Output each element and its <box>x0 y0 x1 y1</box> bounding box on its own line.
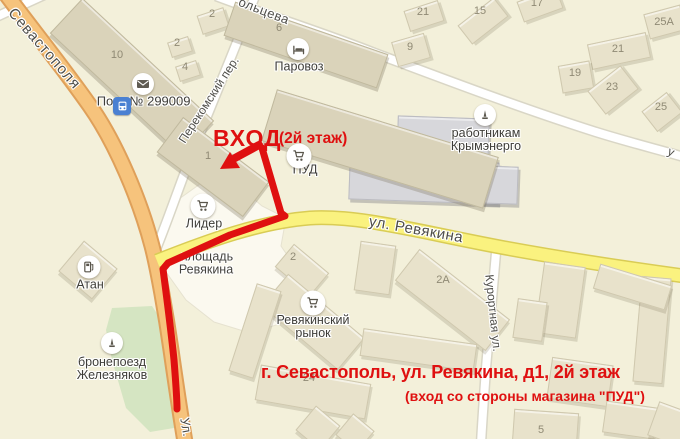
road-topleft-stub <box>0 0 44 17</box>
building <box>391 33 431 67</box>
monument-zheleznyakov-icon[interactable] <box>101 332 123 354</box>
building <box>457 0 508 45</box>
street-label: Ул. <box>178 417 195 438</box>
street-label: ул. Ревякина <box>368 214 465 246</box>
building <box>592 264 671 311</box>
building <box>511 409 578 439</box>
address-line2: (вход со стороны магазина "ПУД") <box>405 389 645 403</box>
area-label: площадь <box>181 250 233 263</box>
building <box>587 65 639 114</box>
building <box>512 298 547 342</box>
building <box>587 32 651 70</box>
bus-stop-icon[interactable] <box>113 97 131 115</box>
store-pud-icon[interactable] <box>287 144 312 169</box>
building <box>643 5 680 40</box>
building <box>517 0 564 23</box>
store-lider-icon[interactable] <box>191 194 216 219</box>
building <box>403 0 444 32</box>
building <box>175 60 201 82</box>
post-office-icon[interactable] <box>132 73 154 95</box>
street-label: у <box>666 145 677 159</box>
park-green-area <box>106 306 180 432</box>
poi-text: По <box>97 95 114 108</box>
fuel-atan-icon[interactable] <box>78 256 101 279</box>
building <box>641 92 680 132</box>
area-label: Ревякина <box>179 263 233 276</box>
monument-krymenergo-icon[interactable] <box>474 104 496 126</box>
market-revyakinsky-icon[interactable] <box>301 291 326 316</box>
map-canvas[interactable]: СевастополяольцеваПерекомский пер.ул. Ре… <box>0 0 680 439</box>
entrance-floor-note: (2й этаж) <box>279 131 347 147</box>
address-line1: г. Севастополь, ул. Ревякина, д1, 2й эта… <box>261 363 620 381</box>
store-lider-label: Лидер <box>186 218 222 231</box>
hotel-parovoz-icon[interactable] <box>287 38 309 60</box>
building <box>167 36 193 58</box>
entrance-label: ВХОД <box>213 127 281 150</box>
monument-zheleznyakov-label: бронепоезд Железняков <box>77 356 148 382</box>
building <box>335 413 374 439</box>
building <box>354 241 397 296</box>
